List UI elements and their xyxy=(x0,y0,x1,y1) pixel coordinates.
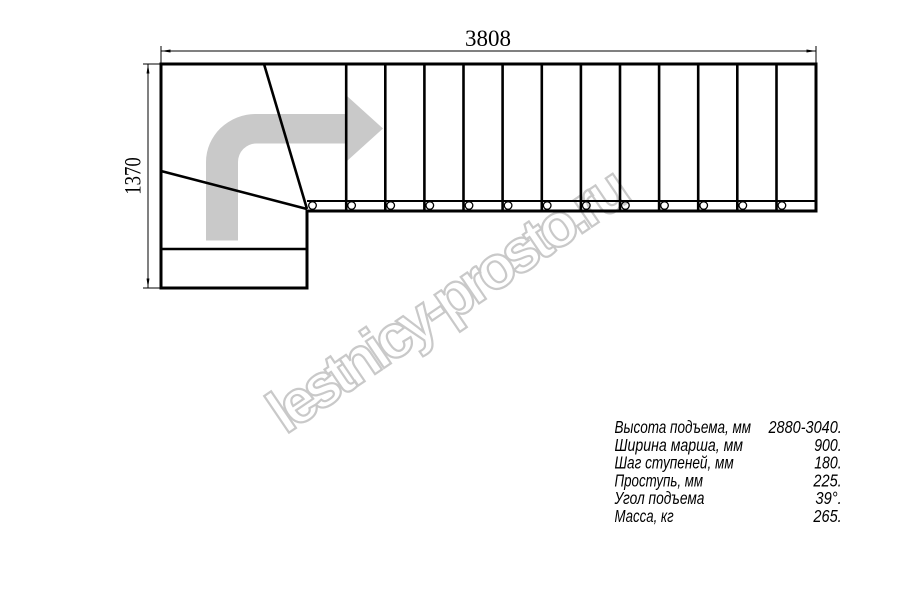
svg-text:Масса, кг: Масса, кг xyxy=(615,506,674,526)
svg-text:265.: 265. xyxy=(813,506,842,526)
svg-text:1370: 1370 xyxy=(121,157,146,195)
svg-text:3808: 3808 xyxy=(465,26,511,51)
